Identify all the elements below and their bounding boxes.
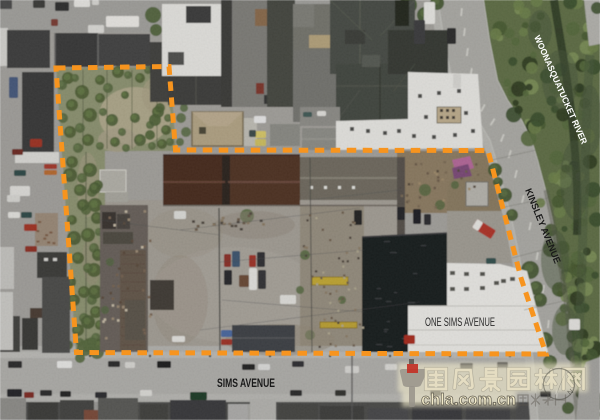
svg-text:chla.com.cn: chla.com.cn (421, 391, 516, 409)
svg-text:SIMS AVENUE: SIMS AVENUE (217, 378, 275, 390)
svg-text:ONE SIMS AVENUE: ONE SIMS AVENUE (425, 317, 495, 329)
